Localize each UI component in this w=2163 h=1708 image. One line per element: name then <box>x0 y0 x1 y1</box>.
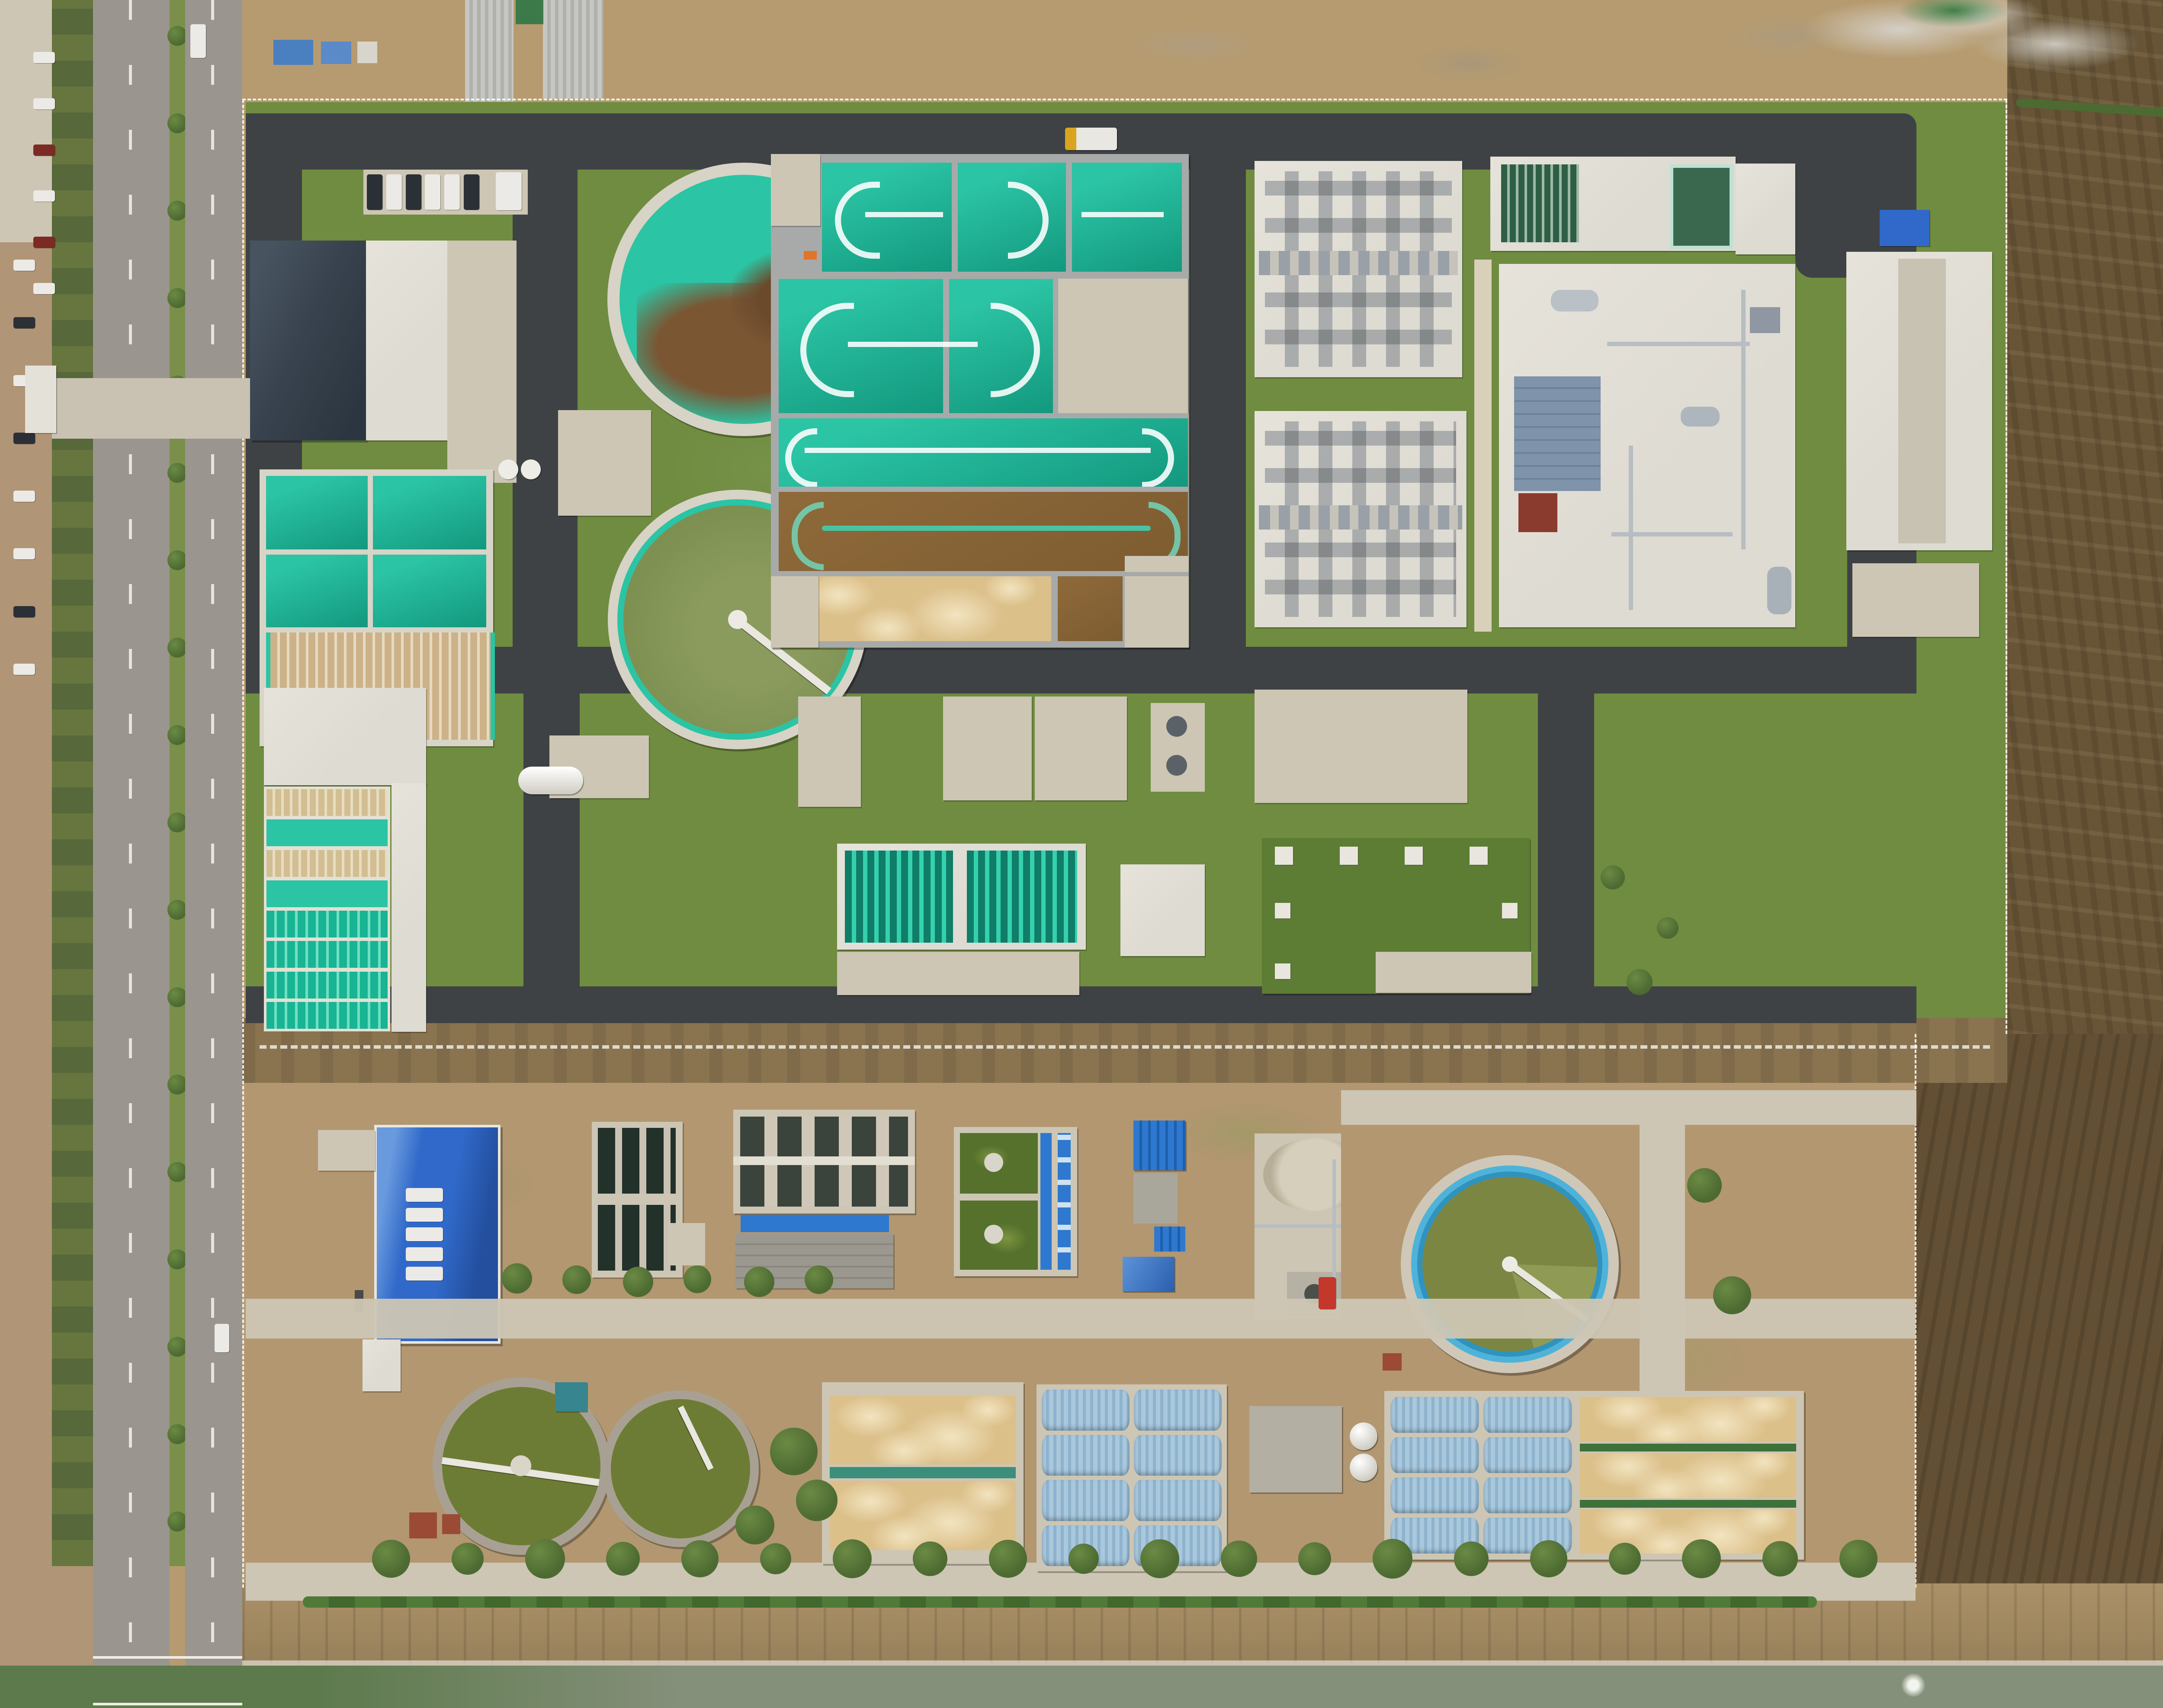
admin-plaza <box>447 241 517 483</box>
biofilter-blue-panels <box>1058 1133 1071 1270</box>
moving-car <box>215 1324 229 1352</box>
utility-building <box>798 697 861 807</box>
plowed-field-lower-right <box>1916 1034 2163 1596</box>
old-plant-road-north <box>1341 1090 1916 1125</box>
sphere-tank <box>1350 1454 1377 1481</box>
gatehouse <box>25 366 56 433</box>
oxidation-platform <box>1058 273 1188 414</box>
site-shed-white <box>357 42 377 63</box>
tree-cluster <box>735 1506 774 1544</box>
covered-basin <box>1035 697 1127 800</box>
oxidation-platform2 <box>1125 556 1189 648</box>
gray-mid-building <box>1133 1173 1178 1223</box>
red-truck <box>1319 1277 1336 1309</box>
slate-roof-section <box>1514 376 1601 491</box>
pretreatment-cell <box>266 476 368 549</box>
rust-pad <box>409 1512 437 1538</box>
contact-cells-north <box>598 1128 676 1194</box>
old-plant-parking <box>405 1188 444 1281</box>
aeration-cell <box>1058 575 1123 641</box>
lane-divider-teal <box>830 1467 1016 1478</box>
silo-tank <box>498 459 518 479</box>
entrance-drive <box>52 378 268 439</box>
revetment-line <box>242 1660 2163 1666</box>
rooftop-unit <box>1750 307 1780 333</box>
pretreatment-cell <box>266 555 368 627</box>
lane-marking <box>211 0 214 1708</box>
distributor-mechanism <box>984 1153 1003 1172</box>
hedge-south <box>303 1596 1817 1608</box>
lawn-tree <box>1657 917 1678 939</box>
membrane-cells <box>845 851 953 943</box>
distributor-mechanism <box>984 1225 1003 1244</box>
rooftop-vent-band <box>1259 251 1458 275</box>
lawn-tree <box>1601 865 1625 889</box>
teal-roof-shed <box>555 1382 587 1412</box>
bottom-right-complex-frame <box>1384 1391 1804 1560</box>
tree-row-mid <box>684 1265 711 1293</box>
clarifier-center-platform <box>728 610 747 629</box>
blue-warehouse <box>1133 1120 1185 1170</box>
aeration-cell-foamy <box>779 575 1051 641</box>
aeration-lane-foam <box>830 1396 1016 1464</box>
blower-building-south <box>1255 411 1467 627</box>
rooftop-unit <box>1767 567 1791 614</box>
small-process-building <box>1120 864 1205 956</box>
rooftop-unit <box>1681 407 1720 427</box>
green-tarp <box>516 0 543 24</box>
annex-building <box>1852 563 1979 637</box>
bridge-rail <box>93 1703 242 1705</box>
membrane-cells <box>967 851 1077 943</box>
fence-east-upper <box>2006 100 2009 1034</box>
old-clarifier-b-water <box>611 1399 750 1538</box>
oxidation-pad <box>771 154 820 226</box>
catwalk <box>771 487 1189 492</box>
canal-water <box>0 1666 2163 1708</box>
algae-divider <box>1580 1500 1796 1508</box>
channel-wall <box>805 448 1151 453</box>
plant-road-mid-horizontal <box>246 647 1916 693</box>
gray-process-building <box>1249 1406 1342 1493</box>
green-roof-annex <box>1376 952 1531 993</box>
plant-road-v2 <box>1190 169 1246 688</box>
moving-van <box>190 24 206 58</box>
gable-annex <box>363 1339 401 1391</box>
roadside-parking-lower <box>13 260 35 675</box>
hedge-strip-west <box>52 0 93 1566</box>
filter-cell-teal <box>266 819 388 846</box>
dosing-building-long <box>1846 252 1992 550</box>
covered-basin <box>943 697 1032 800</box>
skylight <box>1275 847 1293 865</box>
channel-wall <box>1081 212 1164 217</box>
aeration-lane-foam <box>1580 1397 1796 1442</box>
plant-road-mid-v2 <box>1538 692 1594 1021</box>
median-tree-row <box>167 26 188 1531</box>
old-clarifier-a-center <box>510 1455 531 1476</box>
orange-equipment <box>804 251 817 260</box>
lane-marking <box>129 0 132 1708</box>
dosing-skid-pad <box>1151 703 1205 792</box>
catwalk <box>771 413 1189 418</box>
site-shed-blue <box>273 40 313 65</box>
tree-row-mid <box>805 1265 833 1294</box>
channel-wall <box>848 342 978 347</box>
cross-beam <box>733 1156 915 1165</box>
biofilter-blue-walkway <box>1040 1133 1052 1270</box>
filter-roof-building <box>1490 157 1736 251</box>
blue-covered-cells-right <box>1390 1397 1572 1554</box>
tree-row-mid <box>623 1267 653 1297</box>
roadside-parking-upper <box>33 52 55 294</box>
dosing-tank <box>1166 716 1187 737</box>
pipe-rack-line <box>260 1045 1990 1052</box>
outfall-splash <box>1902 1673 1925 1697</box>
pretreatment-cell <box>373 476 486 549</box>
algae-divider <box>1580 1444 1796 1451</box>
membrane-tank-building <box>837 844 1086 950</box>
red-hatch <box>1518 493 1557 532</box>
admin-building-navy-roof <box>250 241 366 440</box>
warehouse-roof <box>543 0 603 99</box>
visitor-parking-cars <box>367 173 479 211</box>
bridge-rail <box>93 1656 242 1659</box>
plowed-field-upper-right <box>2007 0 2163 1034</box>
plant-road-midband-bottom <box>246 986 1916 1023</box>
biofilter-block <box>954 1127 1077 1276</box>
footpath <box>1474 260 1492 632</box>
roof-water-tank <box>1670 164 1733 249</box>
admin-wing-white <box>366 241 447 440</box>
catwalk <box>771 273 1189 279</box>
staging-yard-debris <box>1060 9 1968 100</box>
aerial-photo-wastewater-plant <box>0 0 2163 1708</box>
bottom-tree-row <box>372 1535 1877 1583</box>
big-clarifier-center <box>1502 1256 1518 1272</box>
rust-pad <box>1383 1353 1402 1371</box>
valve-pad <box>668 1223 705 1265</box>
tree-row-mid <box>502 1263 532 1294</box>
channel-teal-wall <box>822 526 1151 531</box>
filter-cells <box>266 789 388 1029</box>
tree-row-mid <box>562 1265 591 1294</box>
channel-wall <box>865 212 943 217</box>
stair-tower <box>1736 164 1795 254</box>
truck-cab <box>1065 128 1076 150</box>
tree-cluster <box>1713 1276 1751 1314</box>
filter-gallery-building <box>264 688 426 785</box>
rooftop-unit <box>1551 290 1598 311</box>
membrane-annex <box>837 952 1079 995</box>
sphere-tank <box>1350 1422 1377 1450</box>
parked-van <box>496 172 522 210</box>
median-tree <box>167 26 187 46</box>
grit-aeration-structure <box>733 1110 915 1214</box>
catwalk <box>771 572 1189 576</box>
pretreatment-cell <box>373 555 486 627</box>
site-shed-blue <box>321 42 351 64</box>
horizontal-tank-white <box>518 767 583 794</box>
blue-roof-small <box>1154 1226 1185 1252</box>
fence-north <box>242 99 2007 102</box>
aeration-lane-foam <box>1580 1453 1796 1498</box>
covered-channel-blue <box>741 1215 889 1232</box>
rooftop-vent-band <box>1259 505 1462 530</box>
blue-building-wing <box>318 1130 375 1171</box>
tree-cluster <box>1687 1168 1722 1203</box>
roof-stripe <box>1898 259 1946 543</box>
tree-cluster <box>796 1480 838 1521</box>
lawn-tree <box>1627 969 1653 995</box>
silo-tank <box>521 459 541 479</box>
tree-cluster <box>770 1428 818 1475</box>
oxidation-cell <box>1072 163 1182 272</box>
fence-west <box>242 100 246 1588</box>
roof-filter-basin <box>1501 164 1579 242</box>
filter-cell-tan <box>266 789 388 816</box>
pump-house <box>558 410 651 516</box>
blue-pump-station <box>1123 1257 1175 1291</box>
equipment-roof-building <box>1499 264 1795 627</box>
contact-cells-south <box>598 1205 676 1271</box>
rust-pad <box>442 1514 460 1534</box>
filter-gallery-spine <box>392 783 426 1032</box>
warehouse-roof <box>465 0 513 102</box>
big-concrete-building <box>1255 690 1467 803</box>
hopper-machine-blue <box>1880 210 1929 246</box>
blower-building-north <box>1255 161 1462 377</box>
oxidation-pad2 <box>771 575 818 648</box>
tree-row-mid <box>744 1267 774 1297</box>
dosing-tank <box>1166 755 1187 776</box>
